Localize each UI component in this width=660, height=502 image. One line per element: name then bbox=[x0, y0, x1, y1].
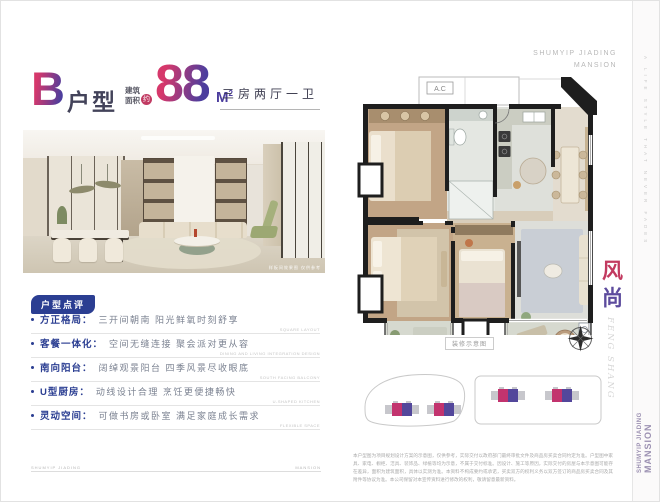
review-item: 灵动空间： 可做书房或卧室 满足家庭成长需求 FLEXIBLE SPACE bbox=[31, 408, 320, 430]
area-value: 88 bbox=[155, 58, 209, 110]
dining-chair bbox=[105, 238, 123, 262]
dining-table bbox=[51, 230, 129, 238]
bullet-dot-icon bbox=[31, 318, 34, 321]
edge-tagline: A LIFE STYLE THAT NEVER FADES bbox=[643, 56, 648, 246]
rooms-description: 三房两厅一卫 bbox=[220, 85, 320, 110]
unit-letter: B bbox=[31, 65, 65, 112]
area-prefix: 建筑 面积 bbox=[125, 86, 140, 106]
fengshang-en: FENG SHANG bbox=[605, 317, 615, 400]
unit-type-label: 户型 bbox=[67, 83, 117, 117]
dining-chair bbox=[79, 238, 97, 262]
fengshang-vertical-title: 风 尚 bbox=[602, 257, 623, 312]
bullet-dot-icon bbox=[31, 342, 34, 345]
lounge-chair bbox=[250, 226, 279, 238]
dining-chair bbox=[53, 238, 71, 262]
panel-footer-rule: SHUMYIP JIADING MANSION bbox=[31, 463, 321, 472]
disclaimer-text: 本户型图为项目规划设计方案的示意图，仅供参考，实际交付以政府部门最终审批文件及商… bbox=[353, 452, 613, 484]
brochure-page: B 户型 建筑 面积 约 88 M2 三房两厅一卫 SHUMYIP JIADIN… bbox=[0, 0, 660, 502]
coffee-table bbox=[174, 236, 220, 246]
shelf-left bbox=[143, 158, 175, 226]
bullet-dot-icon bbox=[31, 366, 34, 369]
photo-caption: 样板间效果图 仅供参考 bbox=[269, 265, 321, 271]
plan-caption: 装修示意图 bbox=[445, 337, 494, 350]
review-item: U型厨房： 动线设计合理 烹饪更便捷畅快 U-SHAPED KITCHEN bbox=[31, 384, 320, 406]
brand-bottom-right: SHUMYIP JIADING MANSION bbox=[637, 412, 653, 473]
brand-top-right: SHUMYIP JIADING MANSION bbox=[533, 48, 617, 72]
interior-rendering-photo: 样板间效果图 仅供参考 bbox=[23, 130, 325, 273]
balcony-window bbox=[281, 142, 325, 258]
review-item: 南向阳台： 阔绰观景阳台 四季风景尽收眼底 SOUTH FACING BALCO… bbox=[31, 360, 320, 382]
review-item: 客餐一体化： 空间无缝连接 聚会派对更从容 DINING AND LIVING … bbox=[31, 336, 320, 358]
bullet-dot-icon bbox=[31, 414, 34, 417]
area-approx-badge: 约 bbox=[141, 94, 152, 105]
plant bbox=[57, 206, 67, 224]
ac-label: A.C bbox=[434, 86, 446, 93]
bullet-dot-icon bbox=[31, 390, 34, 393]
review-item: 方正格局： 三开间朝南 阳光鲜氧时刻舒享 SQUARE LAYOUT bbox=[31, 312, 320, 334]
shelf-right bbox=[215, 158, 247, 226]
site-plan bbox=[357, 371, 609, 429]
floor-plan: A.C bbox=[357, 71, 597, 335]
glass-partition bbox=[47, 156, 125, 238]
compass-icon bbox=[567, 325, 594, 352]
